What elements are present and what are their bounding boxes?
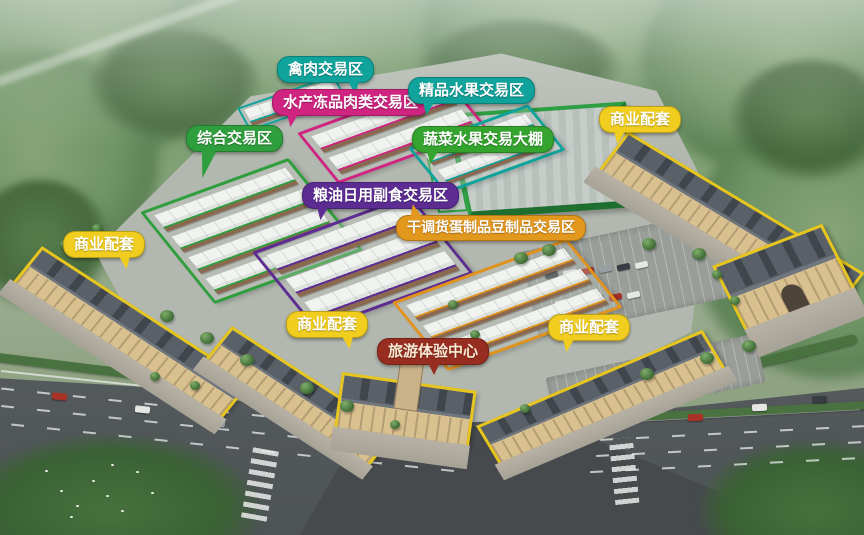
zone-label-tourism-center: 旅游体验中心 [377, 338, 489, 365]
zone-label-commercial-center: 商业配套 [286, 311, 368, 338]
tree [448, 300, 458, 309]
tree [240, 354, 254, 366]
bird [60, 490, 63, 492]
tree [542, 244, 556, 256]
zone-label-vegetable-fruit-shed: 蔬菜水果交易大棚 [412, 126, 554, 153]
tree [742, 340, 756, 352]
zone-label-commercial-west: 商业配套 [63, 231, 145, 258]
zone-label-text: 旅游体验中心 [388, 342, 478, 360]
car [752, 404, 767, 412]
bird [121, 510, 124, 512]
zone-label-text: 蔬菜水果交易大棚 [423, 130, 543, 148]
zone-label-commercial-southeast: 商业配套 [548, 314, 630, 341]
zone-label-text: 商业配套 [559, 318, 619, 336]
car [52, 392, 68, 401]
zone-label-text: 禽肉交易区 [288, 60, 363, 78]
zone-label-poultry: 禽肉交易区 [277, 56, 374, 83]
tree [730, 296, 740, 305]
tree [514, 252, 528, 264]
zone-label-aquatic-frozen-meat: 水产冻品肉类交易区 [272, 89, 429, 116]
zone-label-text: 商业配套 [297, 315, 357, 333]
tree [700, 352, 714, 364]
bird [111, 464, 114, 466]
car [135, 405, 151, 414]
tree [640, 368, 654, 380]
zone-label-text: 干调货蛋制品豆制品交易区 [407, 220, 575, 236]
zone-label-text: 粮油日用副食交易区 [313, 186, 448, 204]
zone-label-text: 水产冻品肉类交易区 [283, 93, 418, 111]
tree [340, 400, 354, 412]
bird [45, 470, 48, 472]
bird [76, 505, 79, 507]
bird [70, 516, 73, 518]
tree [712, 270, 722, 279]
tree [520, 404, 530, 413]
tree [300, 382, 314, 394]
label-tail [120, 255, 134, 270]
zone-label-comprehensive: 综合交易区 [186, 125, 283, 152]
bird [136, 471, 139, 473]
bird [151, 492, 154, 494]
zone-label-text: 精品水果交易区 [419, 81, 524, 99]
label-tail [343, 335, 357, 350]
zone-label-text: 商业配套 [74, 235, 134, 253]
clock-tower [393, 361, 423, 412]
aerial-market-map: 禽肉交易区 水产冻品肉类交易区 精品水果交易区 蔬菜水果交易大棚 综合交易区 粮… [0, 0, 864, 535]
zone-label-text: 综合交易区 [197, 129, 272, 147]
tree [390, 420, 400, 429]
bird [92, 480, 95, 482]
bird [106, 495, 109, 497]
zone-label-grain-oil-food: 粮油日用副食交易区 [302, 182, 459, 209]
tree [692, 248, 706, 260]
tree [200, 332, 214, 344]
car [812, 396, 827, 404]
zone-label-premium-fruit: 精品水果交易区 [408, 77, 535, 104]
tree [160, 310, 174, 322]
tree [642, 238, 656, 250]
tree [150, 372, 160, 381]
label-tail [408, 203, 421, 218]
zone-label-text: 商业配套 [610, 110, 670, 128]
car [688, 414, 703, 422]
zone-label-dry-goods-egg-bean: 干调货蛋制品豆制品交易区 [396, 215, 586, 241]
tree [190, 381, 200, 390]
label-tail [428, 363, 440, 375]
zone-label-commercial-northeast: 商业配套 [599, 106, 681, 133]
